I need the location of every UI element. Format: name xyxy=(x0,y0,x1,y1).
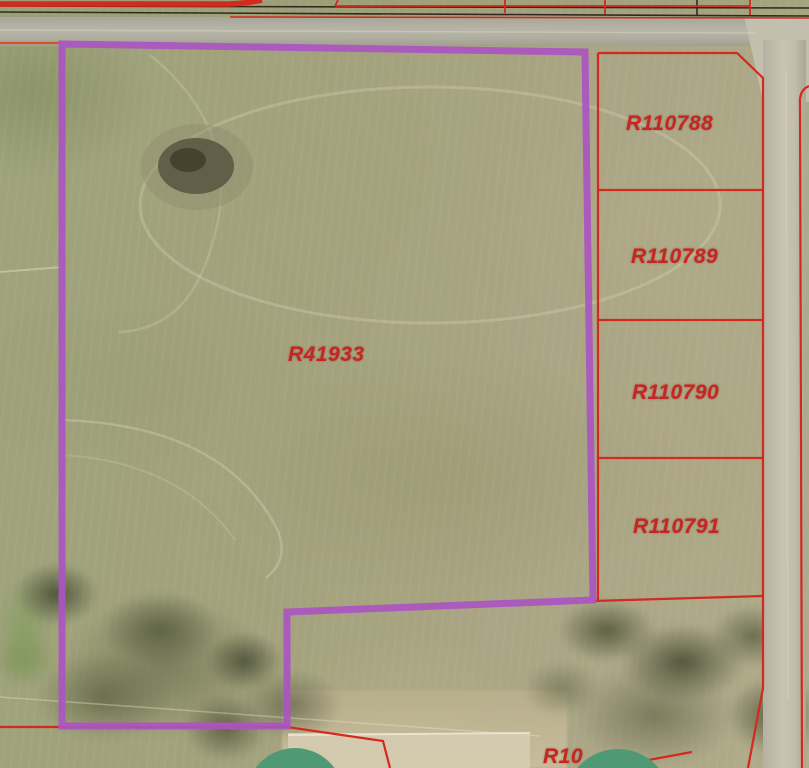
parcel-label-partial: R10 xyxy=(543,746,583,767)
parcel-label: R110788 xyxy=(626,113,713,134)
ground-feature xyxy=(141,124,253,210)
building-pad xyxy=(288,733,530,768)
parcel-label-selected: R41933 xyxy=(288,344,365,365)
parcel-label: R110789 xyxy=(631,246,718,267)
parcel-label: R110790 xyxy=(632,382,719,403)
map-canvas[interactable]: R10 R41933 R110788 R110789 R110790 R1107… xyxy=(0,0,809,768)
selected-parcel-boundary[interactable] xyxy=(62,44,593,726)
parcel-label: R110791 xyxy=(633,516,720,537)
